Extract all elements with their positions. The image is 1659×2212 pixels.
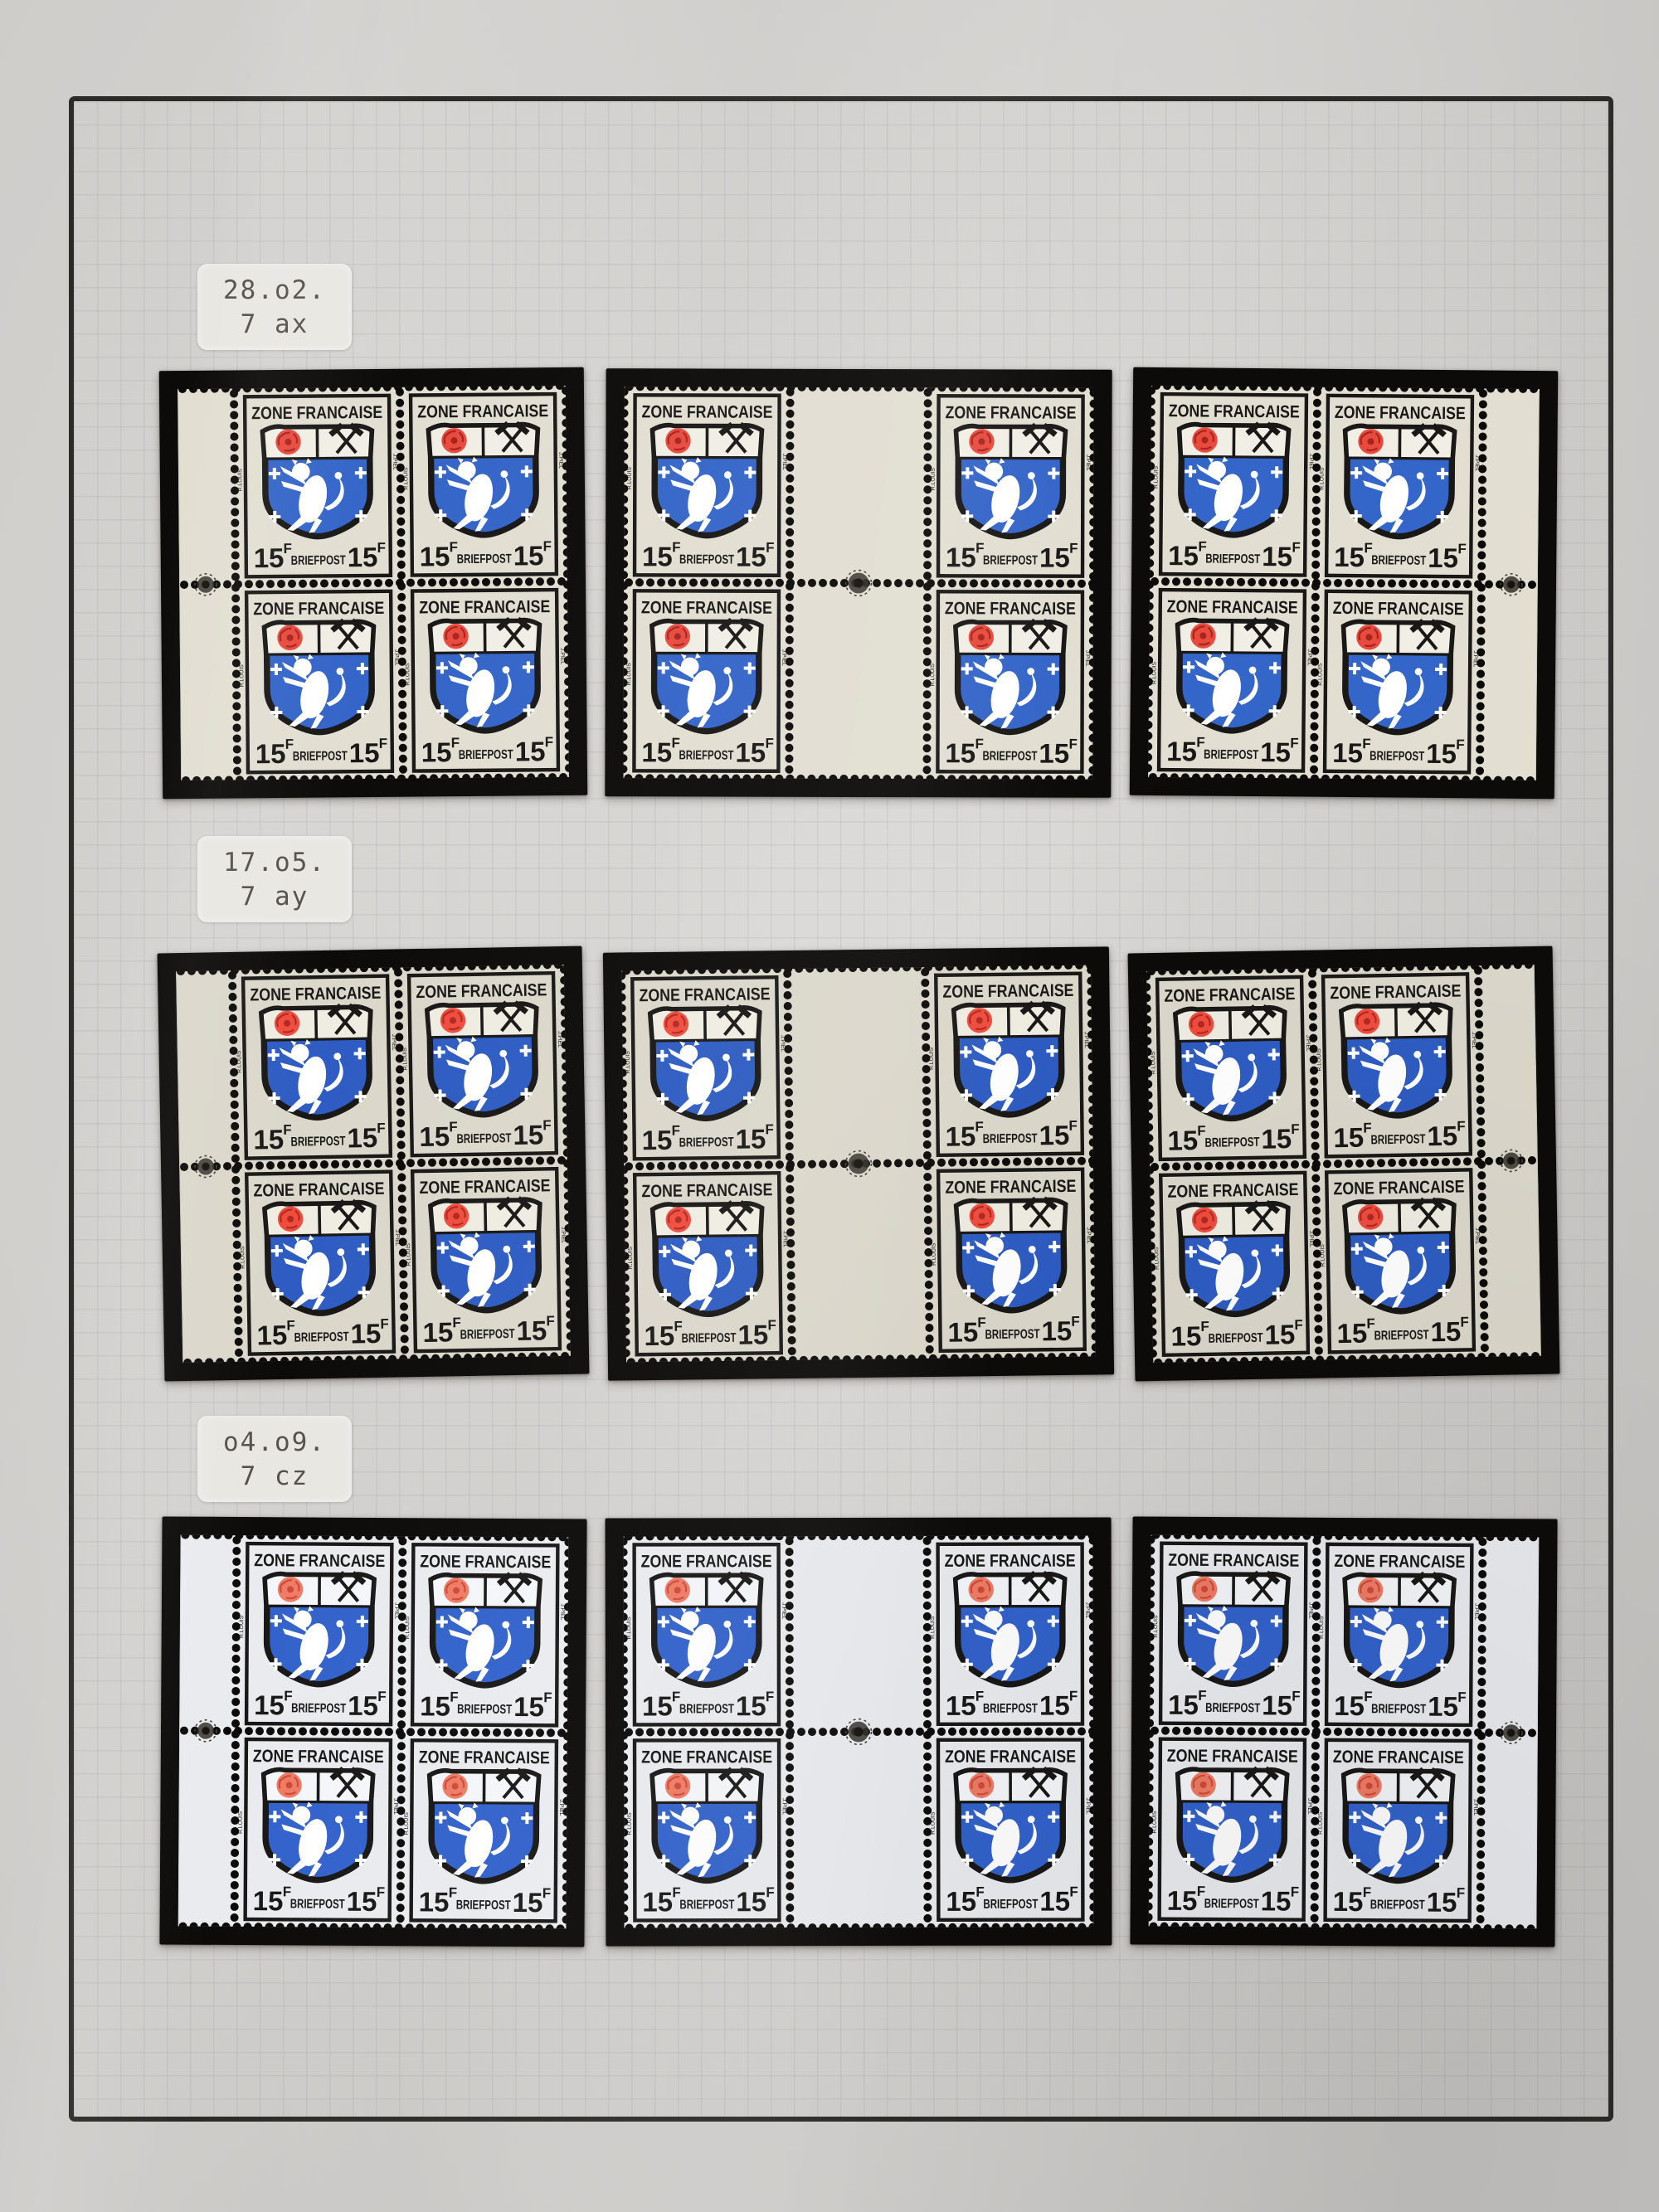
denomination-right: 15 (1428, 542, 1458, 573)
service-text: BRIEFPOST (1371, 1702, 1426, 1716)
service-text: BRIEFPOST (679, 748, 733, 762)
stamp-country-text: ZONE FRANCAISE (945, 1177, 1076, 1198)
denomination-right: 15 (1039, 738, 1069, 769)
coat-of-arms (650, 1004, 761, 1120)
denomination-unit-right: F (766, 1884, 774, 1900)
denomination-right: 15 (1261, 1123, 1292, 1155)
service-text: BRIEFPOST (1205, 552, 1260, 567)
coat-of-arms (956, 1767, 1065, 1881)
denomination-right: 15 (348, 1690, 378, 1721)
typed-label-row-3: o4.o9.7 cz (197, 1416, 352, 1502)
service-text: BRIEFPOST (983, 1131, 1039, 1146)
denomination-unit-right: F (1068, 737, 1077, 752)
label-line2: 7 cz (201, 1460, 348, 1494)
coat-of-arms (1342, 618, 1452, 733)
denomination-left: 15 (255, 738, 286, 769)
coat-of-arms (1178, 1570, 1288, 1685)
service-text: BRIEFPOST (982, 749, 1037, 763)
service-text: BRIEFPOST (291, 553, 346, 568)
rose-emblem (1190, 1772, 1216, 1798)
denomination-right: 15 (349, 737, 380, 768)
stamp-mount-block4-margin-left: ZONE FRANCAISE15FBRIEFPOST15FR.LOUISJ.PI… (159, 1516, 586, 1947)
stamp-country-text: ZONE FRANCAISE (942, 981, 1073, 1002)
service-text: BRIEFPOST (679, 552, 734, 566)
stamp-country-text: ZONE FRANCAISE (1169, 401, 1300, 421)
label-line2: 7 ay (201, 880, 348, 914)
rose-emblem (1356, 1773, 1382, 1799)
denomination-left: 15 (1170, 1320, 1201, 1352)
coat-of-arms (954, 1000, 1065, 1116)
service-text: BRIEFPOST (290, 1135, 346, 1150)
rose-emblem (1358, 1578, 1384, 1603)
coat-of-arms (1176, 616, 1287, 732)
coat-of-arms (652, 422, 761, 537)
service-text: BRIEFPOST (1204, 748, 1258, 763)
service-text: BRIEFPOST (1374, 1328, 1429, 1343)
denomination-unit-right: F (1071, 1314, 1080, 1330)
denomination-left: 15 (1336, 1318, 1367, 1349)
denomination-right: 15 (1261, 1885, 1292, 1916)
service-text: BRIEFPOST (681, 1331, 737, 1346)
denomination-unit-right: F (1456, 737, 1465, 752)
denomination-left: 15 (254, 542, 285, 573)
denomination-right: 15 (736, 1690, 766, 1721)
stamp-block: ZONE FRANCAISE15FBRIEFPOST15FR.LOUISJ.PI… (623, 386, 1093, 779)
rose-emblem (278, 1577, 304, 1602)
denomination-right: 15 (513, 1887, 543, 1918)
stamp-block: ZONE FRANCAISE15FBRIEFPOST15FR.LOUISJ.PI… (621, 965, 1096, 1363)
mount-row-3: ZONE FRANCAISE15FBRIEFPOST15FR.LOUISJ.PI… (161, 1518, 1556, 1946)
denomination-unit-right: F (1457, 1885, 1466, 1901)
denomination-left: 15 (947, 1316, 978, 1347)
rose-emblem (1356, 625, 1382, 650)
denomination-unit-right: F (767, 1317, 776, 1333)
coat-of-arms (1175, 1004, 1287, 1120)
rose-emblem (441, 428, 467, 454)
denomination-unit-right: F (377, 1121, 386, 1136)
album-page: 28.o2.7 axZONE FRANCAISE15FBRIEFPOST15FR… (0, 0, 1659, 2212)
stamp-mount-block4-margin-right: ZONE FRANCAISE15FBRIEFPOST15FR.LOUISJ.PI… (1130, 1516, 1557, 1947)
coat-of-arms (1177, 1766, 1287, 1881)
denomination-unit-right: F (1460, 1314, 1469, 1330)
service-text: BRIEFPOST (679, 1135, 735, 1150)
service-text: BRIEFPOST (457, 1703, 512, 1717)
denomination-left: 15 (642, 541, 673, 571)
service-text: BRIEFPOST (1209, 1331, 1264, 1346)
stamp-block: ZONE FRANCAISE15FBRIEFPOST15FR.LOUISJ.PI… (1146, 965, 1541, 1363)
service-text: BRIEFPOST (1371, 553, 1426, 568)
service-text: BRIEFPOST (294, 1330, 350, 1345)
denomination-right: 15 (1262, 541, 1292, 571)
stamp-country-text: ZONE FRANCAISE (253, 1179, 384, 1201)
denomination-left: 15 (1333, 1886, 1364, 1917)
denomination-right: 15 (1041, 1315, 1072, 1346)
denomination-right: 15 (1427, 1887, 1457, 1918)
denomination-unit-right: F (766, 1689, 774, 1704)
coat-of-arms (1344, 1571, 1454, 1686)
stamp-country-text: ZONE FRANCAISE (1333, 599, 1464, 619)
stamp-country-text: ZONE FRANCAISE (253, 599, 384, 619)
coat-of-arms (1178, 421, 1288, 536)
denomination-unit-right: F (1069, 1689, 1078, 1704)
stamp-country-text: ZONE FRANCAISE (1330, 982, 1461, 1004)
stamp-country-text: ZONE FRANCAISE (1335, 403, 1466, 423)
stamp-block: ZONE FRANCAISE15FBRIEFPOST15FR.LOUISJ.PI… (1149, 1535, 1540, 1929)
denomination-unit-right: F (1291, 1884, 1300, 1900)
coat-of-arms (261, 1003, 372, 1119)
denomination-left: 15 (946, 1886, 976, 1917)
service-text: BRIEFPOST (1205, 1701, 1260, 1715)
coat-of-arms (653, 1200, 764, 1315)
denomination-left: 15 (642, 1690, 673, 1721)
stamp-country-text: ZONE FRANCAISE (641, 1552, 772, 1571)
stamp-mount-gutter-block: ZONE FRANCAISE15FBRIEFPOST15FR.LOUISJ.PI… (606, 1517, 1112, 1946)
coat-of-arms (956, 1196, 1068, 1311)
denomination-unit-right: F (380, 1316, 389, 1332)
denomination-right: 15 (350, 1318, 381, 1349)
denomination-unit-right: F (1457, 1689, 1467, 1705)
denomination-left: 15 (419, 1886, 450, 1917)
service-text: BRIEFPOST (457, 552, 512, 567)
denomination-left: 15 (256, 1320, 287, 1351)
rose-emblem (1192, 427, 1218, 453)
denomination-left: 15 (1167, 1885, 1198, 1916)
coat-of-arms (265, 1198, 376, 1315)
stamp-country-text: ZONE FRANCAISE (945, 1748, 1076, 1767)
service-text: BRIEFPOST (460, 1327, 515, 1342)
typed-label-row-1: 28.o2.7 ax (197, 264, 352, 350)
service-text: BRIEFPOST (291, 1701, 346, 1715)
stamp-country-text: ZONE FRANCAISE (251, 403, 382, 423)
coat-of-arms (262, 422, 372, 537)
stamp-block: ZONE FRANCAISE15FBRIEFPOST15FR.LOUISJ.PI… (178, 386, 569, 780)
denomination-left: 15 (945, 737, 975, 768)
denomination-right: 15 (348, 542, 378, 572)
denomination-left: 15 (641, 1125, 672, 1155)
stamp-mount-block4-margin-left: ZONE FRANCAISE15FBRIEFPOST15FR.LOUISJ.PI… (159, 367, 587, 799)
denomination-left: 15 (253, 1124, 284, 1155)
rose-emblem (969, 429, 994, 454)
denomination-left: 15 (422, 1316, 453, 1348)
stamp-country-text: ZONE FRANCAISE (254, 1551, 385, 1571)
mount-row-2: ZONE FRANCAISE15FBRIEFPOST15FR.LOUISJ.PI… (161, 950, 1556, 1378)
denomination-left: 15 (253, 1885, 284, 1916)
service-text: BRIEFPOST (985, 1327, 1040, 1342)
denomination-unit-right: F (1294, 1317, 1303, 1333)
stamp-country-text: ZONE FRANCAISE (639, 984, 770, 1005)
denomination-unit-right: F (377, 540, 387, 556)
stamp-country-text: ZONE FRANCAISE (641, 1748, 772, 1767)
rose-emblem (969, 625, 994, 649)
denomination-unit-right: F (1457, 541, 1467, 557)
stamp-country-text: ZONE FRANCAISE (419, 1748, 550, 1767)
denomination-unit-right: F (1457, 1118, 1466, 1134)
denomination-unit-right: F (1292, 539, 1301, 555)
service-text: BRIEFPOST (1370, 1132, 1426, 1147)
denomination-right: 15 (347, 1886, 377, 1917)
stamp-country-text: ZONE FRANCAISE (1167, 597, 1298, 617)
coat-of-arms (956, 619, 1065, 733)
denomination-unit-right: F (1290, 735, 1299, 751)
denomination-right: 15 (1039, 1120, 1069, 1150)
denomination-unit-right: F (377, 1689, 387, 1704)
coat-of-arms (1343, 1767, 1453, 1882)
stamp-country-text: ZONE FRANCAISE (1333, 1177, 1464, 1198)
stamp-mount-gutter-block: ZONE FRANCAISE15FBRIEFPOST15FR.LOUISJ.PI… (605, 368, 1112, 798)
denomination-unit-right: F (543, 1689, 552, 1705)
rose-emblem (443, 624, 469, 649)
denomination-right: 15 (736, 1886, 766, 1917)
stamp-country-text: ZONE FRANCAISE (1167, 1180, 1298, 1202)
denomination-unit-right: F (765, 736, 773, 751)
denomination-unit-right: F (543, 538, 552, 554)
mount-row-1: ZONE FRANCAISE15FBRIEFPOST15FR.LOUISJ.PI… (161, 369, 1556, 797)
coat-of-arms (431, 1196, 542, 1312)
stamp-mount-block4-margin-left: ZONE FRANCAISE15FBRIEFPOST15FR.LOUISJ.PI… (158, 946, 590, 1382)
service-text: BRIEFPOST (459, 748, 513, 763)
denomination-right: 15 (1427, 1121, 1457, 1152)
denomination-right: 15 (735, 1123, 766, 1154)
stamp-country-text: ZONE FRANCAISE (1334, 1552, 1465, 1572)
denomination-right: 15 (737, 1319, 768, 1349)
label-line1: o4.o9. (201, 1426, 348, 1460)
stamp-block: ZONE FRANCAISE15FBRIEFPOST15FR.LOUISJ.PI… (1148, 386, 1540, 780)
denomination-left: 15 (642, 1886, 673, 1917)
stamp-country-text: ZONE FRANCAISE (945, 1552, 1076, 1571)
denomination-left: 15 (946, 1690, 976, 1721)
coat-of-arms (652, 1767, 761, 1881)
coat-of-arms (264, 618, 374, 733)
rose-emblem (444, 1578, 469, 1603)
stamp-country-text: ZONE FRANCAISE (1164, 984, 1295, 1006)
denomination-right: 15 (513, 1691, 544, 1722)
rose-emblem (1190, 623, 1216, 649)
coat-of-arms (428, 421, 538, 536)
denomination-right: 15 (513, 540, 544, 571)
denomination-unit-right: F (1069, 541, 1078, 557)
rose-emblem (275, 430, 301, 455)
stamp-mount-block4-margin-right: ZONE FRANCAISE15FBRIEFPOST15FR.LOUISJ.PI… (1128, 946, 1560, 1382)
rose-emblem (665, 624, 690, 649)
service-text: BRIEFPOST (1204, 1135, 1260, 1150)
denomination-left: 15 (641, 737, 672, 767)
denomination-left: 15 (945, 1121, 975, 1151)
coat-of-arms (956, 423, 1065, 537)
coat-of-arms (1341, 1001, 1452, 1117)
stamp-country-text: ZONE FRANCAISE (641, 598, 772, 617)
service-text: BRIEFPOST (1204, 1897, 1259, 1911)
denomination-unit-right: F (379, 736, 388, 751)
denomination-unit-right: F (1291, 1121, 1300, 1137)
service-text: BRIEFPOST (456, 1131, 512, 1146)
denomination-left: 15 (1333, 1122, 1364, 1154)
coat-of-arms (430, 1572, 540, 1687)
denomination-right: 15 (347, 1122, 377, 1154)
service-text: BRIEFPOST (290, 1897, 345, 1911)
coat-of-arms (1345, 1197, 1456, 1313)
denomination-left: 15 (644, 1320, 674, 1351)
rose-emblem (1192, 1577, 1218, 1602)
stamp-country-text: ZONE FRANCAISE (253, 1747, 384, 1767)
rose-emblem (665, 1773, 690, 1798)
service-text: BRIEFPOST (293, 749, 348, 764)
denomination-right: 15 (1039, 1690, 1070, 1721)
coat-of-arms (263, 1766, 373, 1881)
denomination-right: 15 (513, 1119, 543, 1150)
service-text: BRIEFPOST (983, 553, 1038, 567)
denomination-unit-right: F (542, 1117, 552, 1133)
denomination-left: 15 (420, 1690, 450, 1721)
coat-of-arms (956, 1571, 1065, 1685)
service-text: BRIEFPOST (1370, 1898, 1425, 1912)
denomination-right: 15 (1264, 1319, 1295, 1350)
denomination-unit-right: F (766, 540, 774, 556)
denomination-unit-right: F (545, 734, 554, 750)
denomination-right: 15 (1426, 738, 1457, 769)
denomination-unit-right: F (546, 1313, 555, 1329)
stamp-country-text: ZONE FRANCAISE (417, 401, 548, 421)
rose-emblem (1358, 429, 1384, 455)
denomination-right: 15 (1039, 542, 1070, 573)
rose-emblem (442, 1773, 468, 1799)
coat-of-arms (652, 618, 761, 732)
coat-of-arms (1344, 422, 1454, 537)
label-line2: 7 ax (201, 308, 348, 342)
typed-label-row-2: 17.o5.7 ay (197, 836, 352, 922)
denomination-unit-right: F (377, 1884, 386, 1900)
stamp-mount-block4-margin-right: ZONE FRANCAISE15FBRIEFPOST15FR.LOUISJ.PI… (1130, 367, 1558, 799)
denomination-left: 15 (1334, 542, 1365, 572)
rose-emblem (277, 625, 303, 651)
denomination-right: 15 (516, 1315, 547, 1346)
coat-of-arms (430, 616, 540, 732)
denomination-left: 15 (1334, 1690, 1365, 1721)
coat-of-arms (427, 1000, 538, 1116)
stamp-country-text: ZONE FRANCAISE (945, 599, 1076, 618)
denomination-left: 15 (419, 1121, 450, 1152)
rose-emblem (969, 1773, 994, 1798)
stamp-country-text: ZONE FRANCAISE (1167, 1747, 1298, 1767)
coat-of-arms (429, 1767, 539, 1883)
stamp-country-text: ZONE FRANCAISE (946, 403, 1077, 422)
denomination-right: 15 (1428, 1691, 1458, 1722)
denomination-unit-right: F (1068, 1118, 1078, 1134)
service-text: BRIEFPOST (1370, 749, 1424, 764)
stamp-country-text: ZONE FRANCAISE (250, 984, 381, 1005)
denomination-left: 15 (1168, 1689, 1199, 1720)
stamp-mount-gutter-block: ZONE FRANCAISE15FBRIEFPOST15FR.LOUISJ.PI… (603, 946, 1114, 1380)
denomination-left: 15 (420, 541, 450, 571)
denomination-left: 15 (254, 1689, 285, 1720)
stamp-country-text: ZONE FRANCAISE (1168, 1551, 1299, 1571)
denomination-right: 15 (515, 736, 546, 766)
stamp-country-text: ZONE FRANCAISE (420, 1552, 551, 1572)
denomination-right: 15 (1262, 1689, 1292, 1720)
denomination-right: 15 (1039, 1886, 1070, 1917)
label-line1: 17.o5. (201, 846, 348, 880)
service-text: BRIEFPOST (456, 1898, 511, 1913)
stamp-block: ZONE FRANCAISE15FBRIEFPOST15FR.LOUISJ.PI… (624, 1536, 1094, 1928)
stamp-block: ZONE FRANCAISE15FBRIEFPOST15FR.LOUISJ.PI… (178, 1535, 569, 1929)
rose-emblem (664, 1578, 689, 1602)
stamp-block: ZONE FRANCAISE15FBRIEFPOST15FR.LOUISJ.PI… (176, 965, 571, 1363)
denomination-right: 15 (735, 737, 766, 768)
rose-emblem (968, 1578, 993, 1602)
denomination-right: 15 (1430, 1316, 1461, 1348)
denomination-left: 15 (1332, 737, 1363, 768)
denomination-right: 15 (1260, 737, 1291, 767)
denomination-left: 15 (1168, 540, 1199, 571)
service-text: BRIEFPOST (983, 1702, 1038, 1716)
denomination-left: 15 (421, 737, 452, 767)
denomination-unit-right: F (765, 1121, 774, 1137)
coat-of-arms (652, 1571, 761, 1685)
stamp-country-text: ZONE FRANCAISE (1333, 1748, 1464, 1767)
service-text: BRIEFPOST (983, 1898, 1038, 1912)
denomination-right: 15 (736, 542, 766, 572)
service-text: BRIEFPOST (679, 1702, 734, 1716)
service-text: BRIEFPOST (679, 1898, 734, 1912)
denomination-unit-right: F (1292, 1689, 1301, 1704)
stamp-country-text: ZONE FRANCAISE (416, 980, 547, 1002)
denomination-unit-right: F (1069, 1884, 1078, 1900)
stamp-country-text: ZONE FRANCAISE (642, 402, 773, 421)
coat-of-arms (264, 1570, 374, 1685)
coat-of-arms (1179, 1199, 1290, 1315)
rose-emblem (276, 1772, 302, 1798)
stamp-country-text: ZONE FRANCAISE (419, 1176, 550, 1198)
stamp-country-text: ZONE FRANCAISE (641, 1180, 772, 1201)
denomination-left: 15 (946, 542, 976, 572)
denomination-left: 15 (1167, 1125, 1198, 1156)
stamp-country-text: ZONE FRANCAISE (419, 597, 550, 617)
denomination-left: 15 (1166, 736, 1197, 766)
denomination-unit-right: F (542, 1885, 552, 1901)
label-line1: 28.o2. (201, 274, 348, 308)
rose-emblem (665, 428, 690, 453)
